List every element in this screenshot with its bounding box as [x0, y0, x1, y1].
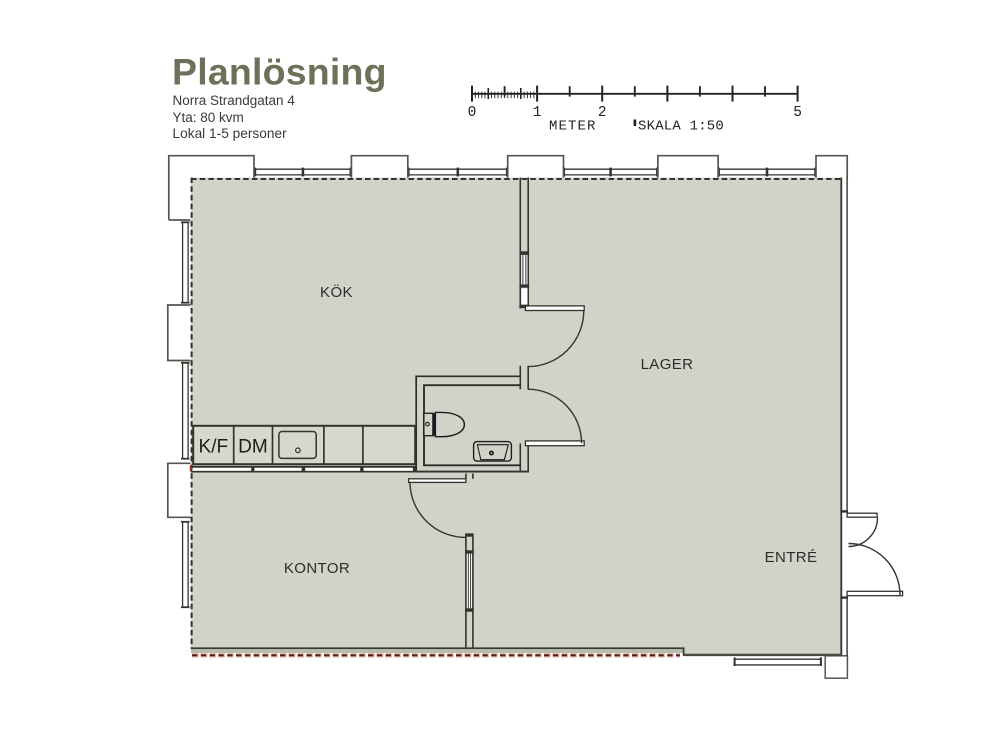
- svg-text:KÖK: KÖK: [320, 283, 353, 301]
- svg-text:SKALA 1:50: SKALA 1:50: [638, 119, 724, 135]
- svg-text:Yta: 80 kvm: Yta: 80 kvm: [173, 110, 244, 125]
- svg-text:K/F: K/F: [199, 436, 229, 457]
- svg-text:DM: DM: [238, 436, 268, 457]
- svg-text:ENTRÉ: ENTRÉ: [765, 549, 818, 566]
- svg-text:2: 2: [598, 105, 607, 121]
- svg-text:Lokal 1-5 personer: Lokal 1-5 personer: [173, 126, 288, 141]
- svg-text:KONTOR: KONTOR: [284, 560, 350, 577]
- svg-text:5: 5: [793, 105, 802, 121]
- svg-text:METER: METER: [549, 119, 597, 135]
- svg-text:Planlösning: Planlösning: [172, 51, 387, 93]
- svg-text:1: 1: [533, 105, 542, 121]
- svg-text:0: 0: [468, 105, 477, 121]
- svg-text:Norra Strandgatan 4: Norra Strandgatan 4: [173, 93, 296, 108]
- svg-text:LAGER: LAGER: [641, 356, 694, 373]
